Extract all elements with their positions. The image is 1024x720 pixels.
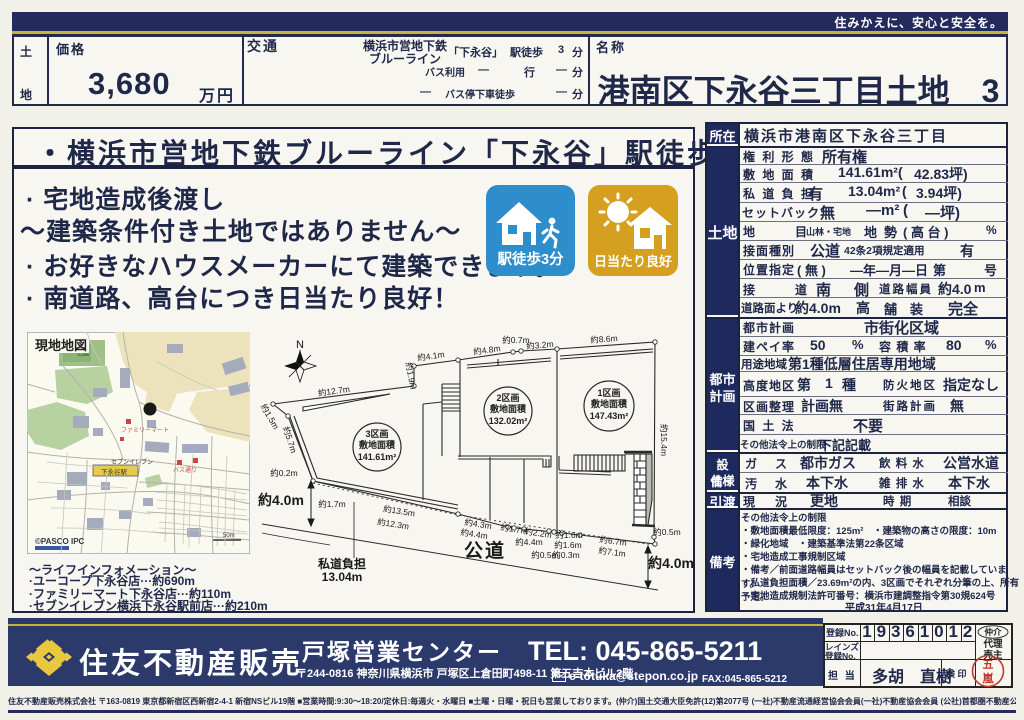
svg-text:132.02m²: 132.02m² <box>489 416 528 426</box>
svg-text:嵐: 嵐 <box>982 671 995 685</box>
svg-text:仲介: 仲介 <box>984 627 1002 637</box>
svg-text:約12.7m: 約12.7m <box>317 384 350 398</box>
svg-text:約4.1m: 約4.1m <box>417 349 446 363</box>
svg-text:バス通り: バス通り <box>173 466 197 474</box>
svg-text:敷地面積: 敷地面積 <box>359 439 396 450</box>
svg-text:50m: 50m <box>223 533 235 539</box>
svg-text:約1.6m: 約1.6m <box>555 530 582 540</box>
svg-text:147.43m²: 147.43m² <box>590 411 629 421</box>
svg-text:約0.5m: 約0.5m <box>653 527 680 537</box>
svg-text:約4.0m: 約4.0m <box>258 492 304 508</box>
svg-text:約1.6m: 約1.6m <box>554 540 581 550</box>
svg-text:141.61m²: 141.61m² <box>358 452 397 462</box>
svg-text:約8.6m: 約8.6m <box>590 333 618 345</box>
svg-text:13.04m: 13.04m <box>322 570 363 584</box>
svg-text:1区画: 1区画 <box>597 388 620 398</box>
svg-text:駅徒歩3分: 駅徒歩3分 <box>496 250 564 268</box>
svg-text:約4.4m: 約4.4m <box>515 537 542 547</box>
svg-text:約12.3m: 約12.3m <box>377 517 410 532</box>
svg-text:約13.5m: 約13.5m <box>383 504 416 519</box>
svg-text:現地地図: 現地地図 <box>35 338 87 353</box>
svg-text:2区画: 2区画 <box>496 393 519 403</box>
svg-text:©PASCO IPC: ©PASCO IPC <box>35 537 85 546</box>
svg-text:N: N <box>296 339 304 351</box>
svg-text:下永谷駅: 下永谷駅 <box>101 467 128 476</box>
svg-text:敷地面積: 敷地面積 <box>591 398 628 409</box>
svg-text:私道負担: 私道負担 <box>317 556 366 571</box>
svg-text:日当たり良好: 日当たり良好 <box>594 254 672 269</box>
svg-text:約1.5m: 約1.5m <box>259 402 281 431</box>
svg-text:ファミリーマート: ファミリーマート <box>121 427 169 434</box>
svg-text:約1.7m: 約1.7m <box>318 499 345 509</box>
svg-text:約5.7m: 約5.7m <box>281 425 299 454</box>
svg-text:セブンイレブン: セブンイレブン <box>111 458 153 466</box>
svg-text:公道: 公道 <box>464 539 506 562</box>
svg-text:敷地面積: 敷地面積 <box>490 403 527 414</box>
svg-text:五: 五 <box>983 658 994 671</box>
svg-text:約4.0m: 約4.0m <box>648 555 694 571</box>
svg-text:約0.3m: 約0.3m <box>552 550 579 560</box>
svg-text:3区画: 3区画 <box>365 429 388 439</box>
svg-text:代理: 代理 <box>982 638 1003 650</box>
svg-text:約15.4m: 約15.4m <box>659 424 669 456</box>
svg-text:約0.2m: 約0.2m <box>270 468 297 478</box>
